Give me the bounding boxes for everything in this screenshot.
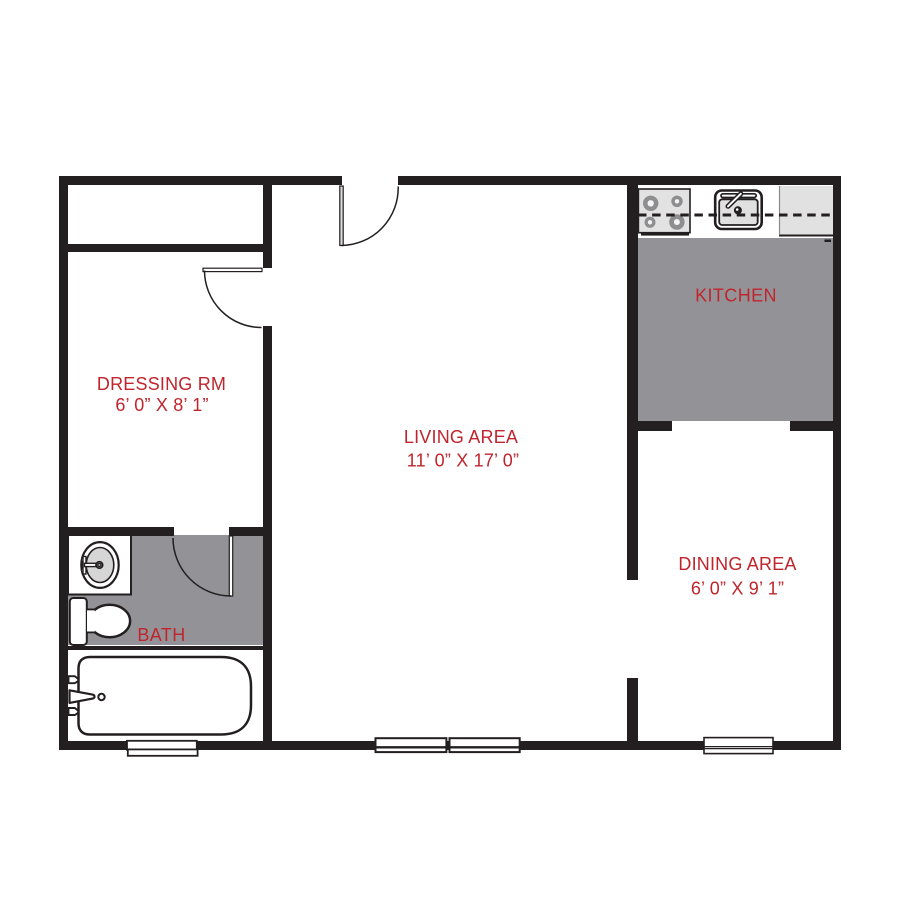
svg-text:KITCHEN: KITCHEN <box>695 286 777 306</box>
svg-text:6’ 0” X 9’ 1”: 6’ 0” X 9’ 1” <box>691 579 784 599</box>
svg-text:DINING AREA: DINING AREA <box>678 554 796 574</box>
svg-text:6’ 0” X 8’ 1”: 6’ 0” X 8’ 1” <box>115 395 208 415</box>
svg-text:LIVING AREA: LIVING AREA <box>404 427 518 447</box>
svg-text:BATH: BATH <box>137 625 185 645</box>
svg-text:DRESSING RM: DRESSING RM <box>97 374 226 394</box>
svg-text:11’ 0” X 17’ 0”: 11’ 0” X 17’ 0” <box>407 451 519 471</box>
